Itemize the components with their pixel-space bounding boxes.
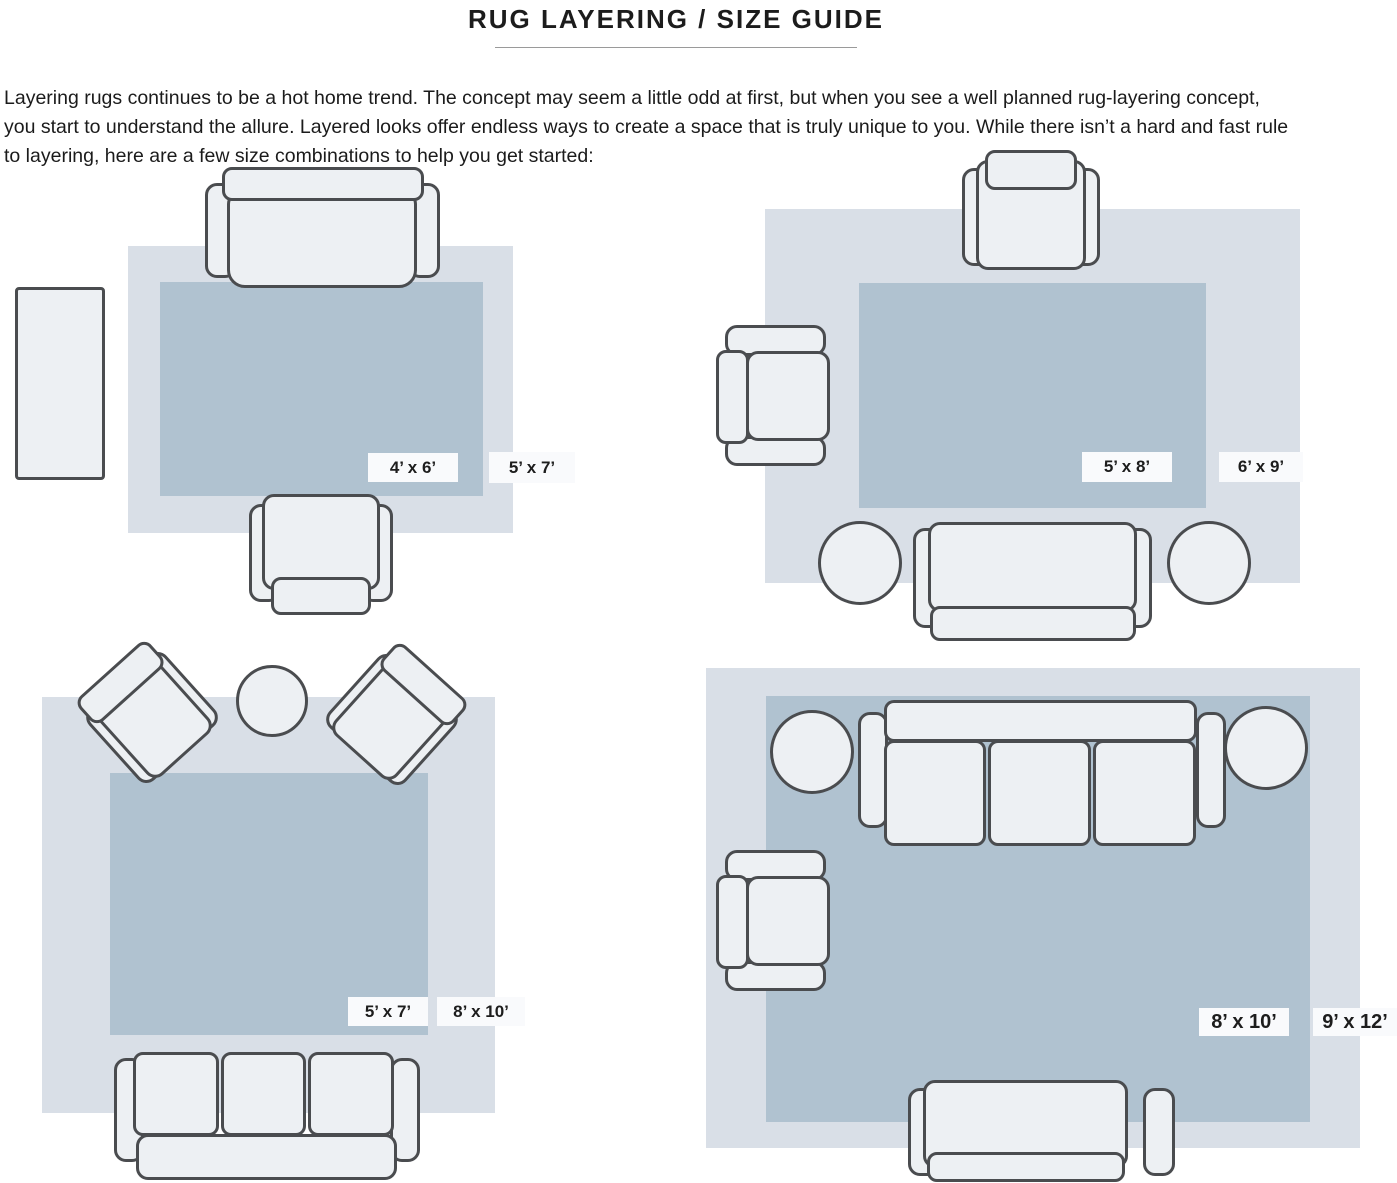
sofa-seat-cushion <box>884 740 986 846</box>
intro-line: you start to understand the allure. Laye… <box>4 113 1288 142</box>
sofa-arm-right <box>1143 1088 1175 1176</box>
inner-rug-size-label: 5’ x 8’ <box>1082 452 1172 482</box>
page-title: RUG LAYERING / SIZE GUIDE <box>0 0 1352 35</box>
round-table <box>1224 706 1308 790</box>
sofa-back-cushion <box>927 1152 1125 1182</box>
sofa-seat <box>227 192 417 288</box>
side-table <box>15 287 105 480</box>
sofa-seat-cushion <box>133 1052 219 1136</box>
inner-rug-size-label: 8’ x 10’ <box>1199 1008 1289 1036</box>
armchair-back-cushion <box>716 875 749 969</box>
sofa-back-cushion <box>884 700 1197 742</box>
intro-line: to layering, here are a few size combina… <box>4 142 1288 171</box>
sofa-seat-cushion <box>988 740 1091 846</box>
armchair-back-cushion <box>716 350 749 444</box>
armchair-seat <box>746 351 830 441</box>
armchair-back-cushion <box>271 577 371 615</box>
armchair-seat <box>262 494 380 590</box>
armchair-back-cushion <box>985 150 1077 190</box>
outer-rug-size-label: 9’ x 12’ <box>1313 1008 1397 1036</box>
rug-size-guide-infographic: RUG LAYERING / SIZE GUIDE Layering rugs … <box>0 0 1397 1183</box>
sofa-back-cushion <box>930 606 1136 641</box>
title-underline <box>495 47 857 48</box>
sofa-arm-right <box>1196 712 1226 828</box>
intro-paragraph: Layering rugs continues to be a hot home… <box>4 84 1288 171</box>
outer-rug-size-label: 8’ x 10’ <box>437 997 525 1026</box>
inner-rug-size-label: 5’ x 7’ <box>348 997 428 1026</box>
round-table <box>770 710 854 794</box>
rug-inner <box>110 773 428 1035</box>
sofa-back-cushion <box>222 167 424 201</box>
header: RUG LAYERING / SIZE GUIDE <box>0 0 1352 48</box>
inner-rug-size-label: 4’ x 6’ <box>368 453 458 482</box>
outer-rug-size-label: 6’ x 9’ <box>1219 452 1303 482</box>
intro-line: Layering rugs continues to be a hot home… <box>4 84 1288 113</box>
round-table <box>818 521 902 605</box>
outer-rug-size-label: 5’ x 7’ <box>489 452 575 483</box>
sofa-back-cushion <box>136 1134 397 1180</box>
armchair-seat <box>746 876 830 966</box>
sofa-seat-cushion <box>308 1052 394 1136</box>
sofa-seat-cushion <box>221 1052 306 1136</box>
sofa-seat <box>928 522 1137 612</box>
sofa-seat-cushion <box>1093 740 1196 846</box>
round-table <box>1167 521 1251 605</box>
round-table <box>236 665 308 737</box>
